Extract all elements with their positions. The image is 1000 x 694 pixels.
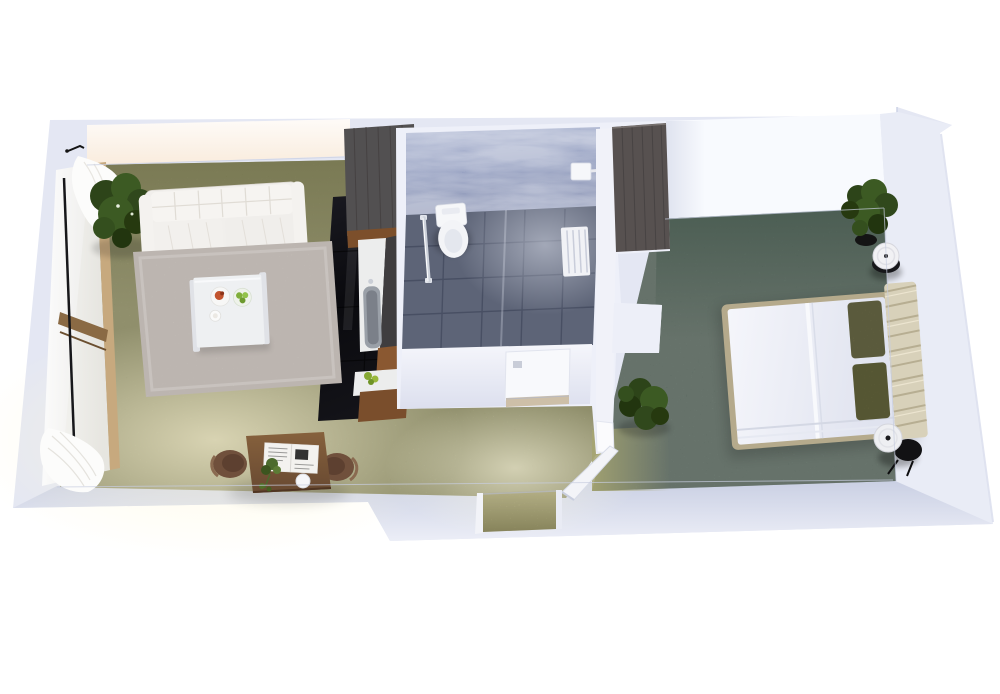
doorway-floor-grain — [483, 490, 556, 532]
tea-cup — [210, 310, 222, 322]
fruit-bowl — [233, 288, 252, 307]
newspaper-photo — [295, 449, 309, 460]
door-stop-dot — [65, 149, 69, 153]
wardrobe — [612, 123, 670, 252]
pillow-south — [852, 362, 890, 420]
bedroom-north-wall-shade — [663, 121, 705, 219]
floor-plan-page — [0, 0, 1000, 694]
pillow-north — [847, 300, 885, 358]
bathroom-step-wall — [612, 303, 662, 353]
doorway-jamb-right — [556, 490, 562, 529]
coffee-table — [189, 272, 270, 354]
serving-plate — [210, 287, 230, 307]
bathroom-door — [505, 349, 570, 407]
door-sign — [513, 361, 522, 368]
white-vase — [296, 474, 310, 488]
shower-mat — [561, 226, 591, 276]
floor-plan-render — [0, 0, 1000, 694]
entry-doorway — [475, 490, 562, 534]
coffee-table-top — [193, 274, 265, 347]
